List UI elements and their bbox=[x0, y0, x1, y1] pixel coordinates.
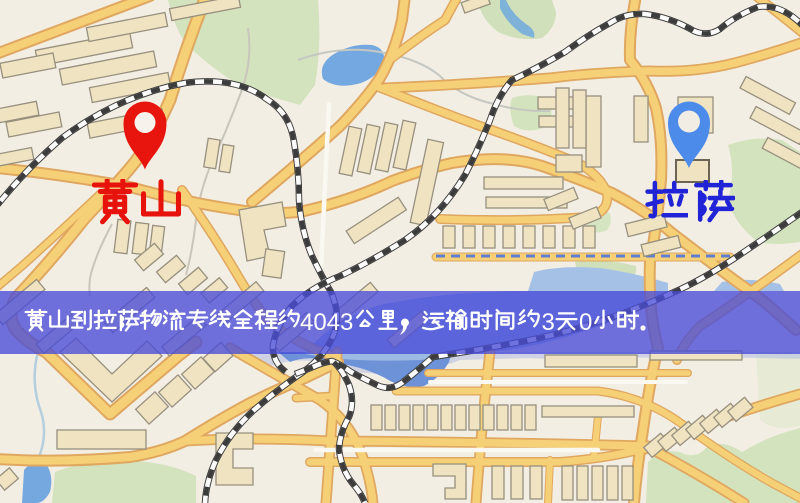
svg-text:0: 0 bbox=[579, 309, 592, 336]
svg-text:4043: 4043 bbox=[300, 309, 353, 336]
svg-text:3: 3 bbox=[542, 309, 555, 336]
